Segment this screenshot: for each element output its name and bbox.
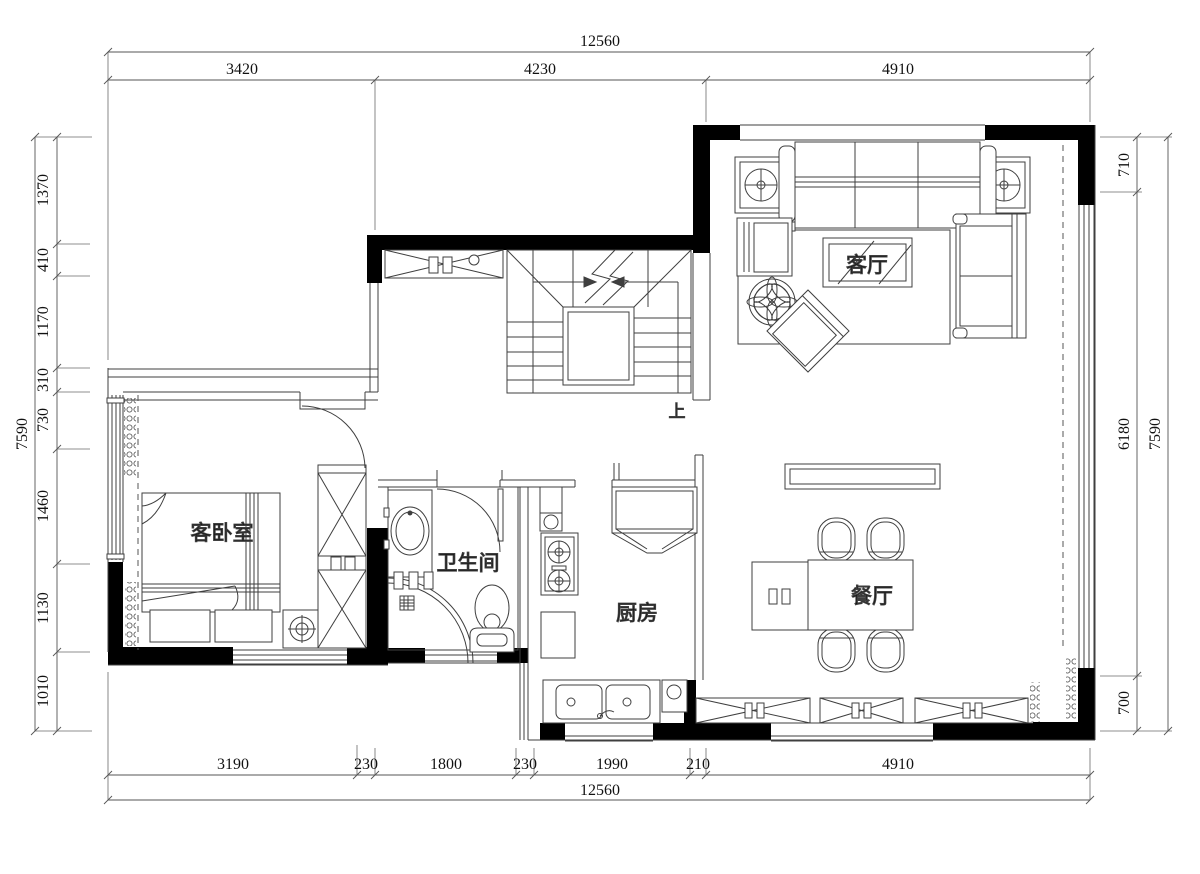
gas-stove [541, 533, 578, 595]
stairs: 上 [507, 250, 691, 421]
floor-plan-svg: 12560 3420 4230 4910 3190 230 1800 230 1… [0, 0, 1200, 874]
toilet [470, 585, 514, 652]
shower-niche [409, 572, 418, 589]
dim-top-seg-2: 4230 [524, 61, 556, 78]
dim-top-total: 12560 [580, 33, 620, 50]
dim-top-seg-3: 4910 [882, 61, 914, 78]
dining-table: 餐厅 [808, 560, 913, 630]
dim-bottom-seg-2: 230 [354, 756, 378, 773]
window-seat-cabinet [696, 698, 810, 723]
kitchen-upper-cabinet [540, 487, 562, 513]
dim-bottom-seg-6: 210 [686, 756, 710, 773]
dim-left-total: 7590 [14, 418, 31, 450]
loveseat [953, 214, 1026, 338]
dining-label: 餐厅 [851, 584, 893, 608]
bed-bench [215, 610, 272, 642]
kitchen-base-cabinet [541, 612, 575, 658]
window-seat-cabinet [820, 698, 903, 723]
dim-top-seg-1: 3420 [226, 61, 258, 78]
dim-bottom-seg-4: 230 [513, 756, 537, 773]
shower-niche [394, 572, 403, 589]
entry-cabinet [385, 250, 503, 278]
floor-drain [400, 596, 414, 610]
dining-chair [867, 518, 904, 562]
room-kitchen: 厨房 [540, 487, 697, 723]
dim-right-seg-2: 6180 [1116, 418, 1133, 450]
dimension-right: 710 6180 700 7590 [1100, 133, 1172, 735]
dim-left-seg-3: 1170 [35, 306, 52, 337]
dim-bottom-total: 12560 [580, 782, 620, 799]
dim-left-seg-8: 1010 [35, 675, 52, 707]
kitchen-label: 厨房 [616, 601, 658, 625]
bedroom-label: 客卧室 [191, 521, 254, 545]
dim-bottom-seg-1: 3190 [217, 756, 249, 773]
dim-left-seg-1: 1370 [35, 174, 52, 206]
dining-chair [818, 628, 855, 672]
kitchen-sink [543, 680, 660, 723]
dim-bottom-seg-3: 1800 [430, 756, 462, 773]
kitchen-right-unit [662, 680, 687, 712]
dim-left-seg-4: 310 [35, 368, 52, 392]
stair-break-icon [585, 250, 633, 305]
bedroom-door [300, 400, 365, 468]
dim-left-seg-2: 410 [35, 248, 52, 272]
dim-left-seg-5: 730 [35, 408, 52, 432]
room-living: 客厅 [735, 142, 1030, 372]
dining-chair [867, 628, 904, 672]
room-bathroom: 卫生间 [384, 487, 518, 663]
coffee-table: 客厅 [823, 238, 912, 287]
bed [142, 493, 280, 612]
bathroom-label: 卫生间 [437, 551, 500, 575]
floor-plan: 12560 3420 4230 4910 3190 230 1800 230 1… [0, 0, 1200, 874]
window-seat-cabinet [915, 698, 1028, 723]
shower-niche [424, 572, 433, 589]
dining-chair [818, 518, 855, 562]
dim-right-total: 7590 [1147, 418, 1164, 450]
room-dining: 餐厅 [696, 464, 1028, 723]
dim-right-seg-1: 710 [1116, 153, 1133, 177]
stairs-up-label: 上 [669, 402, 686, 421]
dim-right-seg-3: 700 [1116, 691, 1133, 715]
kitchen-small-unit [540, 513, 562, 531]
dim-bottom-seg-5: 1990 [596, 756, 628, 773]
bed-bench [150, 610, 210, 642]
nightstand-lamp [283, 610, 322, 648]
dimension-left: 1370 410 1170 310 730 1460 1130 1010 759… [14, 133, 92, 735]
dim-left-seg-7: 1130 [35, 592, 52, 623]
armchair [737, 218, 792, 276]
bathroom-door [437, 489, 503, 552]
wall-shelf [785, 464, 940, 489]
dim-bottom-seg-7: 4910 [882, 756, 914, 773]
room-bedroom: 客卧室 [142, 400, 366, 648]
sideboard [752, 562, 808, 630]
bathroom-sink [384, 490, 432, 577]
living-label: 客厅 [846, 253, 888, 277]
kitchen-corner-cabinet [612, 487, 697, 553]
dim-left-seg-6: 1460 [35, 490, 52, 522]
wardrobe [318, 465, 366, 648]
